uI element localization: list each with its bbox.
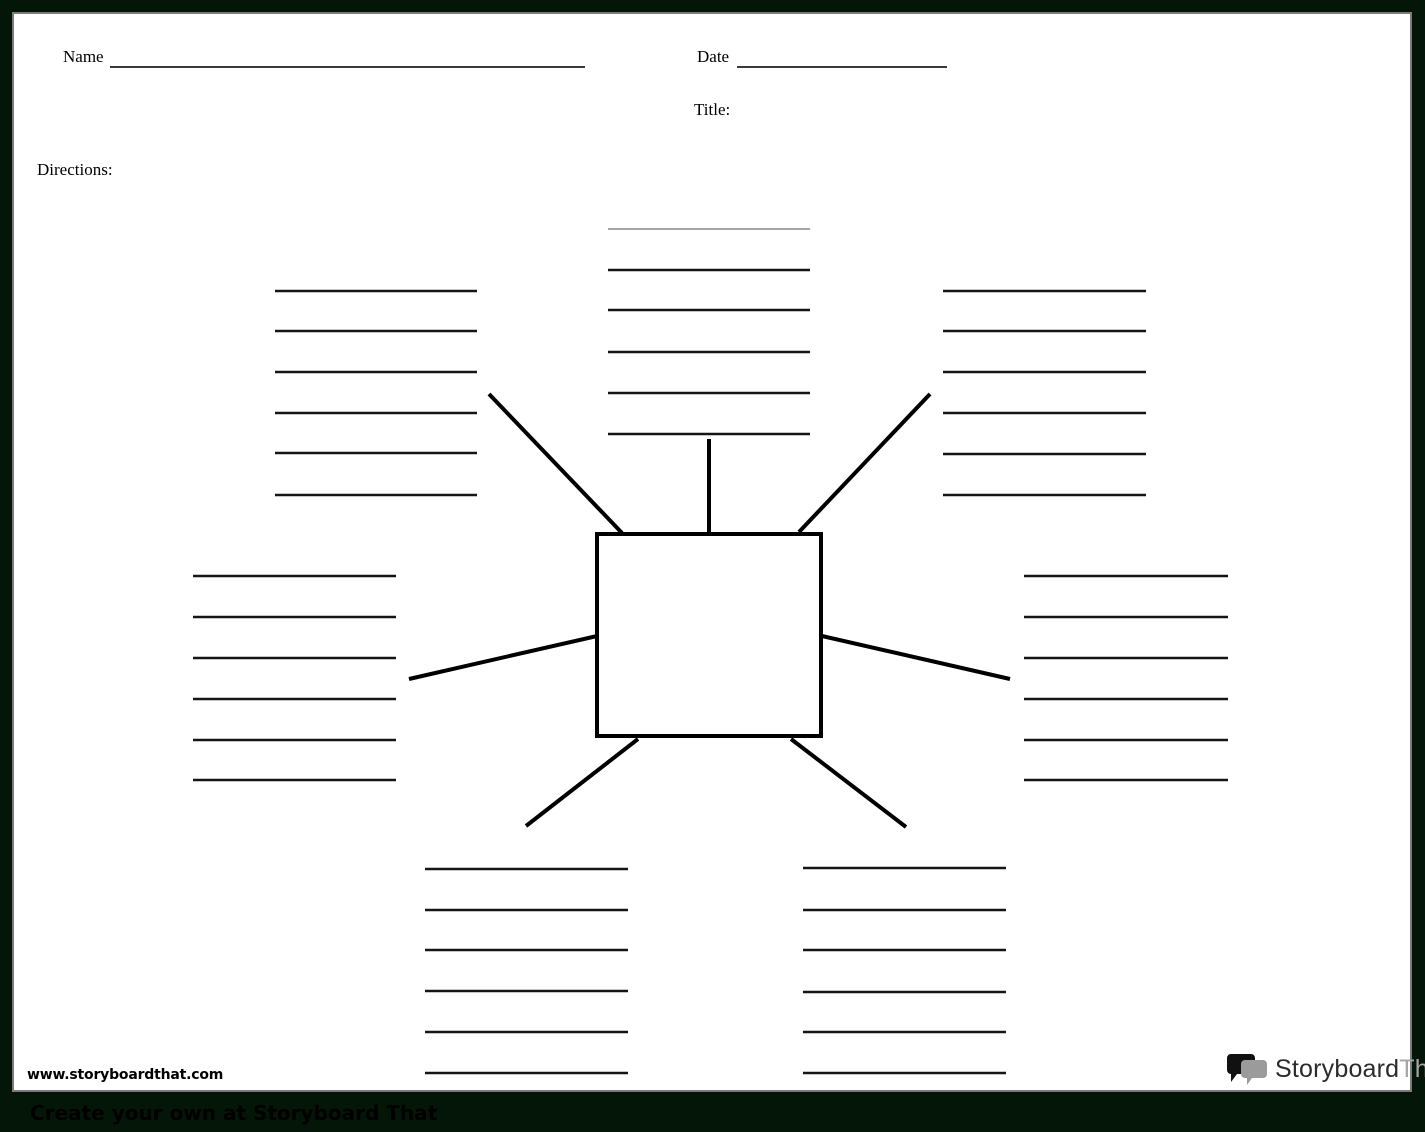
banner-text: Create your own at Storyboard That: [30, 1101, 437, 1125]
spider-map-diagram: [14, 14, 1410, 1090]
connector-top-right: [799, 394, 930, 532]
speech-bubbles-icon: [1227, 1052, 1269, 1086]
storyboard-template-canvas: { "header": { "name_label": "Name", "dat…: [0, 0, 1425, 1132]
logo-text-primary: Storyboard: [1275, 1055, 1399, 1083]
worksheet-page: Name Date Title: Directions: www.storybo…: [12, 12, 1412, 1092]
connector-bottom-left: [526, 739, 638, 826]
logo-text-secondary: That: [1399, 1055, 1425, 1083]
connector-bottom-right: [791, 739, 906, 827]
website-url: www.storyboardthat.com: [27, 1067, 223, 1083]
connector-mid-left: [409, 636, 597, 679]
central-topic-box: [597, 534, 821, 736]
storyboardthat-logo: StoryboardThat: [1227, 1052, 1425, 1086]
connector-mid-right: [822, 636, 1010, 679]
logo-wordmark: StoryboardThat: [1275, 1055, 1425, 1084]
connector-top-left: [489, 394, 622, 533]
